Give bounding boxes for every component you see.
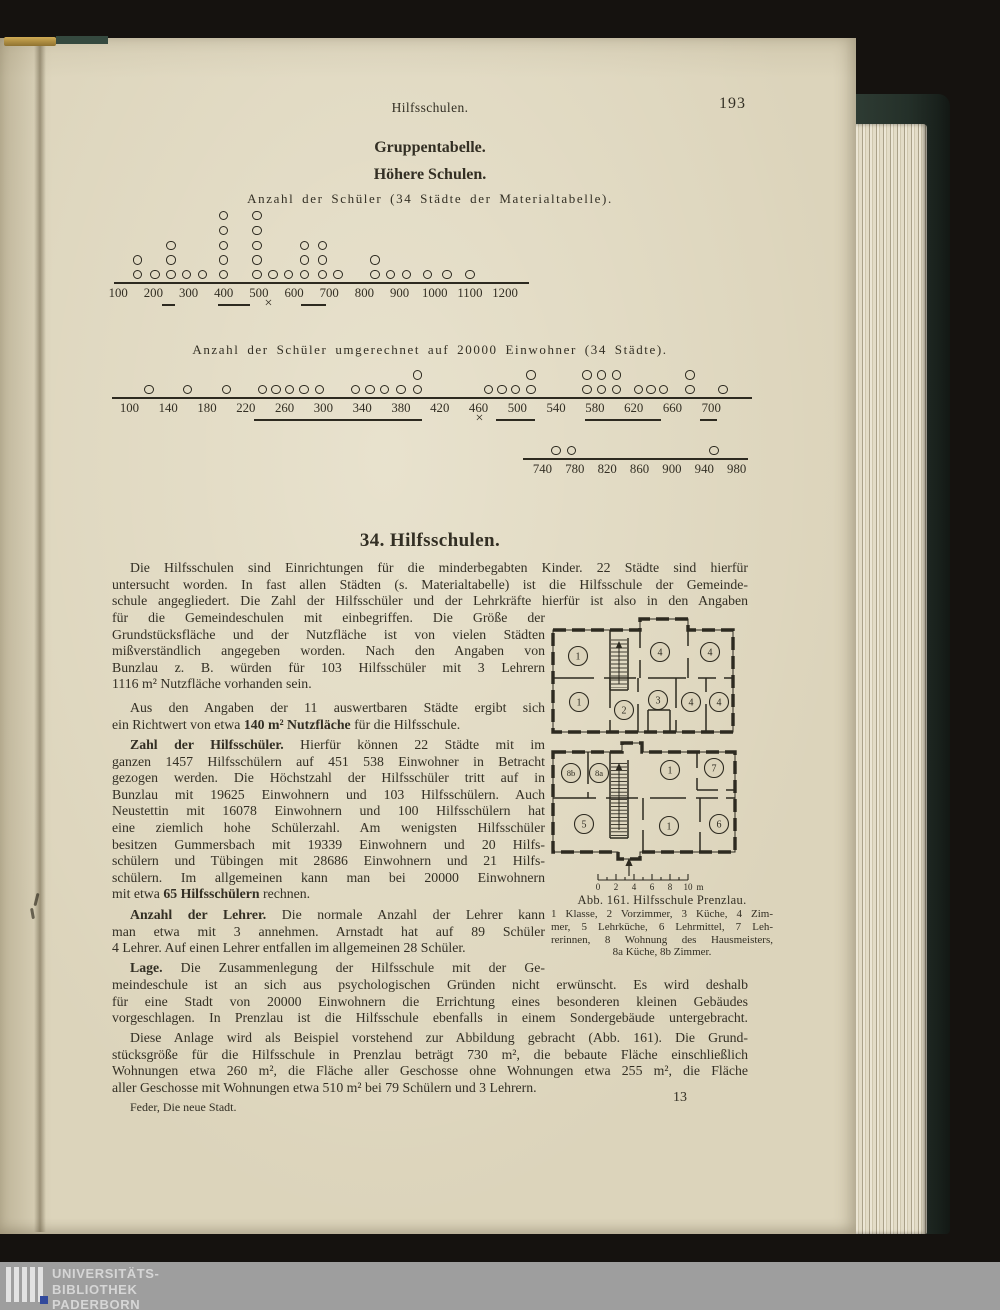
axis-tick-label: 700 <box>309 286 349 301</box>
axis-tick-label: 600 <box>274 286 314 301</box>
data-dot <box>271 385 280 394</box>
data-dot <box>182 270 191 279</box>
text-line: Zahl der Hilfsschüler. Hierfür können 22… <box>112 737 545 754</box>
data-dot <box>685 370 694 379</box>
figure-caption-title: Abb. 161. Hilfsschule Prenzlau. <box>548 893 776 908</box>
text-line: mer, 5 Lehrküche, 6 Lehrmittel, 7 Leh- <box>551 921 773 934</box>
data-dot <box>144 385 153 394</box>
text-line: Bunzlau mit 19625 Einwohnern und 103 Hil… <box>112 787 545 804</box>
paragraph-anlage-beispiel: Diese Anlage wird als Beispiel vorstehen… <box>112 1030 748 1096</box>
data-dot <box>318 241 327 250</box>
headband <box>56 36 108 44</box>
axis-tick-label: 620 <box>614 401 654 416</box>
dot-plot-pupils-per-20000-upper: 1001401802202603003403804204605005405806… <box>112 355 752 435</box>
range-marker <box>700 419 717 421</box>
library-name-line: BIBLIOTHEK <box>52 1282 159 1298</box>
scanned-book-page: Hilfsschulen. 193 Gruppentabelle. Höhere… <box>0 0 1000 1310</box>
axis-tick-label: 100 <box>98 286 138 301</box>
range-marker <box>585 419 661 421</box>
data-dot <box>413 385 422 394</box>
data-dot <box>333 270 342 279</box>
text-line: vorgeschlagen. In Prenzlau ist die Hilfs… <box>112 1010 748 1027</box>
text-line: ein Richtwert von etwa 140 m² Nutzfläche… <box>112 717 545 734</box>
figure-caption-legend: 1 Klasse, 2 Vorzimmer, 3 Küche, 4 Zim-me… <box>551 908 773 959</box>
library-logo-icon <box>0 1262 50 1310</box>
data-dot <box>685 385 694 394</box>
axis-tick-label: 100 <box>109 401 149 416</box>
data-dot <box>219 211 228 220</box>
axis-tick-label: 180 <box>187 401 227 416</box>
data-dot <box>166 270 175 279</box>
paragraph-richtwert: Aus den Angaben der 11 auswertbaren Städ… <box>112 700 545 733</box>
axis-tick-label: 500 <box>497 401 537 416</box>
svg-text:4: 4 <box>717 697 722 708</box>
text-line: schule angegliedert. Die Zahl der Hilfss… <box>112 593 748 610</box>
text-line: 8a Küche, 8b Zimmer. <box>551 946 773 959</box>
data-dot <box>597 385 606 394</box>
data-dot <box>386 270 395 279</box>
text-line: schülern. Im allgemeinen kann man bei 20… <box>112 870 545 887</box>
data-dot <box>300 270 309 279</box>
footer-sheet-number: 13 <box>660 1090 700 1106</box>
axis-tick-label: 300 <box>303 401 343 416</box>
svg-text:4: 4 <box>632 882 637 892</box>
axis-line <box>112 397 752 399</box>
svg-text:1: 1 <box>667 821 672 832</box>
data-dot <box>133 270 142 279</box>
text-line: Lage. Die Zusammenlegung der Hilfsschule… <box>112 960 545 977</box>
data-dot <box>351 385 360 394</box>
text-line: untersucht worden. In fast allen Städten… <box>112 577 748 594</box>
text-line: stücksgröße für die Hilfsschule in Prenz… <box>112 1047 748 1064</box>
svg-text:4: 4 <box>689 697 694 708</box>
axis-tick-label: 260 <box>265 401 305 416</box>
gutter-crease <box>34 44 46 1232</box>
data-dot <box>497 385 506 394</box>
data-dot <box>252 255 261 264</box>
axis-tick-label: 980 <box>717 462 757 477</box>
axis-tick-label: 140 <box>148 401 188 416</box>
text-line: meindeschule ist an sich aus psychologis… <box>112 977 748 994</box>
paragraph-lage-full: meindeschule ist an sich aus psychologis… <box>112 977 748 1027</box>
data-dot <box>315 385 324 394</box>
axis-tick-label: 1000 <box>415 286 455 301</box>
svg-text:1: 1 <box>668 765 673 776</box>
mean-marker: × <box>475 412 483 426</box>
text-line: gezogen werden. Die Höchstzahl der Hilfs… <box>112 770 545 787</box>
axis-tick-label: 540 <box>536 401 576 416</box>
text-line: Grundstücksfläche und der Nutzfläche ist… <box>112 627 545 644</box>
data-dot <box>718 385 727 394</box>
data-dot <box>612 370 621 379</box>
data-dot <box>300 255 309 264</box>
data-dot <box>268 270 277 279</box>
svg-text:1: 1 <box>577 697 582 708</box>
range-marker <box>218 304 250 306</box>
text-line: für eine Stadt von 20000 Einwohnern die … <box>112 994 748 1011</box>
data-dot <box>219 226 228 235</box>
mean-marker: × <box>264 297 272 311</box>
data-dot <box>484 385 493 394</box>
axis-tick-label: 1200 <box>485 286 525 301</box>
data-dot <box>370 255 379 264</box>
data-dot <box>284 270 293 279</box>
text-line: schülern und Tübingen mit 28686 Einwohne… <box>112 853 545 870</box>
svg-text:10: 10 <box>684 882 694 892</box>
text-line: ganzen 1457 Hilfsschülern auf 451 538 Ei… <box>112 754 545 771</box>
text-line: Diese Anlage wird als Beispiel vorstehen… <box>112 1030 748 1047</box>
text-line: eine ziemlich hohe Schülerzahl. Am wenig… <box>112 820 545 837</box>
group-table-title: Gruppentabelle. <box>112 139 748 157</box>
range-marker <box>254 419 423 421</box>
page-stack-edge <box>849 124 927 1234</box>
range-marker <box>496 419 535 421</box>
gilt-edge <box>4 37 56 46</box>
data-dot <box>252 270 261 279</box>
footer-signature: Feder, Die neue Stadt. <box>130 1100 237 1115</box>
svg-text:1: 1 <box>576 651 581 662</box>
svg-text:3: 3 <box>656 695 661 706</box>
data-dot <box>166 255 175 264</box>
data-dot <box>380 385 389 394</box>
svg-text:6: 6 <box>650 882 655 892</box>
data-dot <box>198 270 207 279</box>
text-line: 4 Lehrer. Auf einen Lehrer entfallen im … <box>112 940 545 957</box>
axis-tick-label: 500 <box>239 286 279 301</box>
page-number: 193 <box>600 95 746 113</box>
svg-text:6: 6 <box>717 819 722 830</box>
data-dot <box>252 226 261 235</box>
library-band: UNIVERSITÄTS- BIBLIOTHEK PADERBORN <box>0 1262 1000 1310</box>
data-dot <box>582 370 591 379</box>
text-line: mißverständlich angegeben worden. Nach d… <box>112 643 545 660</box>
data-dot <box>526 385 535 394</box>
axis-tick-label: 1100 <box>450 286 490 301</box>
svg-text:0: 0 <box>596 882 601 892</box>
data-dot <box>365 385 374 394</box>
data-dot <box>370 270 379 279</box>
axis-tick-label: 300 <box>169 286 209 301</box>
data-dot <box>150 270 159 279</box>
text-line: für die Gemeindeschulen mit einbegriffen… <box>112 610 545 627</box>
axis-tick-label: 420 <box>420 401 460 416</box>
range-marker <box>162 304 175 306</box>
text-line: aller Geschosse mit Wohnungen etwa 510 m… <box>112 1080 748 1097</box>
data-dot <box>659 385 668 394</box>
data-dot <box>252 241 261 250</box>
text-line: 1 Klasse, 2 Vorzimmer, 3 Küche, 4 Zim- <box>551 908 773 921</box>
paragraph-intro-narrow: für die Gemeindeschulen mit einbegriffen… <box>112 610 545 693</box>
data-dot <box>396 385 405 394</box>
paragraph-anzahl-der-lehrer: Anzahl der Lehrer. Die normale Anzahl de… <box>112 907 545 957</box>
axis-tick-label: 580 <box>575 401 615 416</box>
data-dot <box>634 385 643 394</box>
data-dot <box>526 370 535 379</box>
svg-text:8a: 8a <box>595 768 603 778</box>
data-dot <box>299 385 308 394</box>
data-dot <box>709 446 718 455</box>
axis-tick-label: 340 <box>342 401 382 416</box>
text-line: mit etwa 65 Hilfsschülern rechnen. <box>112 886 545 903</box>
axis-line <box>114 282 529 284</box>
data-dot <box>318 255 327 264</box>
data-dot <box>222 385 231 394</box>
data-dot <box>300 241 309 250</box>
text-line: besitzen Gummersbach mit 19339 Einwohner… <box>112 837 545 854</box>
data-dot <box>442 270 451 279</box>
svg-text:8: 8 <box>668 882 673 892</box>
room-labels-upper: 1 4 4 1 2 3 4 4 <box>569 643 729 720</box>
text-line: Neustettin mit 16078 Einwohnern und 100 … <box>112 803 545 820</box>
axis-tick-label: 900 <box>380 286 420 301</box>
paragraph-zahl-der-hilfsschueler: Zahl der Hilfsschüler. Hierfür können 22… <box>112 737 545 903</box>
text-line: man etwa mit 3 annehmen. Arnstadt hat au… <box>112 924 545 941</box>
data-dot <box>166 241 175 250</box>
axis-tick-label: 200 <box>133 286 173 301</box>
library-name: UNIVERSITÄTS- BIBLIOTHEK PADERBORN <box>52 1266 159 1310</box>
text-line: rerinnen, 8 Wohnung des Hausmeisters, <box>551 934 773 947</box>
data-dot <box>219 241 228 250</box>
data-dot <box>285 385 294 394</box>
data-dot <box>567 446 576 455</box>
data-dot <box>402 270 411 279</box>
svg-text:8b: 8b <box>567 768 576 778</box>
svg-text:2: 2 <box>614 882 619 892</box>
text-line: Anzahl der Lehrer. Die normale Anzahl de… <box>112 907 545 924</box>
data-dot <box>582 385 591 394</box>
text-line: Wohnungen etwa 260 m², die Fläche aller … <box>112 1063 748 1080</box>
svg-text:m: m <box>696 882 703 892</box>
text-line: Die Hilfsschulen sind Einrichtungen für … <box>112 560 748 577</box>
library-name-line: PADERBORN <box>52 1297 159 1310</box>
floor-plan-upper: 1 4 4 1 2 3 4 4 <box>548 614 776 736</box>
axis-tick-label: 400 <box>204 286 244 301</box>
data-dot <box>318 270 327 279</box>
data-dot <box>258 385 267 394</box>
data-dot <box>183 385 192 394</box>
axis-line <box>523 458 748 460</box>
data-dot <box>423 270 432 279</box>
dot-plot-pupils-absolute: 100200300400500600700800900100011001200× <box>114 205 529 317</box>
axis-tick-label: 700 <box>691 401 731 416</box>
data-dot <box>511 385 520 394</box>
scale-bar: 0 2 4 6 8 10 m <box>596 874 704 892</box>
room-labels-ground: 8b 8a 1 7 5 1 6 <box>562 759 729 836</box>
data-dot <box>413 370 422 379</box>
data-dot <box>252 211 261 220</box>
paragraph-intro-full: Die Hilfsschulen sind Einrichtungen für … <box>112 560 748 610</box>
axis-tick-label: 660 <box>652 401 692 416</box>
group-table-subtitle: Höhere Schulen. <box>112 166 748 184</box>
data-dot <box>465 270 474 279</box>
svg-text:4: 4 <box>708 647 713 658</box>
data-dot <box>219 270 228 279</box>
data-dot <box>597 370 606 379</box>
paragraph-lage-narrow: Lage. Die Zusammenlegung der Hilfsschule… <box>112 960 545 977</box>
floor-plan-ground: 8b 8a 1 7 5 1 6 0 2 4 6 8 10 m <box>548 740 776 892</box>
text-line: Aus den Angaben der 11 auswertbaren Städ… <box>112 700 545 717</box>
data-dot <box>551 446 560 455</box>
svg-text:4: 4 <box>658 647 663 658</box>
data-dot <box>133 255 142 264</box>
svg-text:2: 2 <box>622 705 627 716</box>
axis-tick-label: 380 <box>381 401 421 416</box>
section-heading: 34. Hilfsschulen. <box>112 530 748 552</box>
data-dot <box>646 385 655 394</box>
range-marker <box>301 304 326 306</box>
library-name-line: UNIVERSITÄTS- <box>52 1266 159 1282</box>
svg-text:7: 7 <box>712 763 717 774</box>
text-line: Bunzlau z. B. würden für 103 Hilfsschüle… <box>112 660 545 677</box>
svg-text:5: 5 <box>582 819 587 830</box>
dot-plot-pupils-per-20000-lower: 740780820860900940980 <box>523 440 748 482</box>
axis-tick-label: 220 <box>226 401 266 416</box>
data-dot <box>612 385 621 394</box>
data-dot <box>219 255 228 264</box>
text-line: 1116 m² Nutzfläche vorhanden sein. <box>112 676 545 693</box>
axis-tick-label: 800 <box>344 286 384 301</box>
